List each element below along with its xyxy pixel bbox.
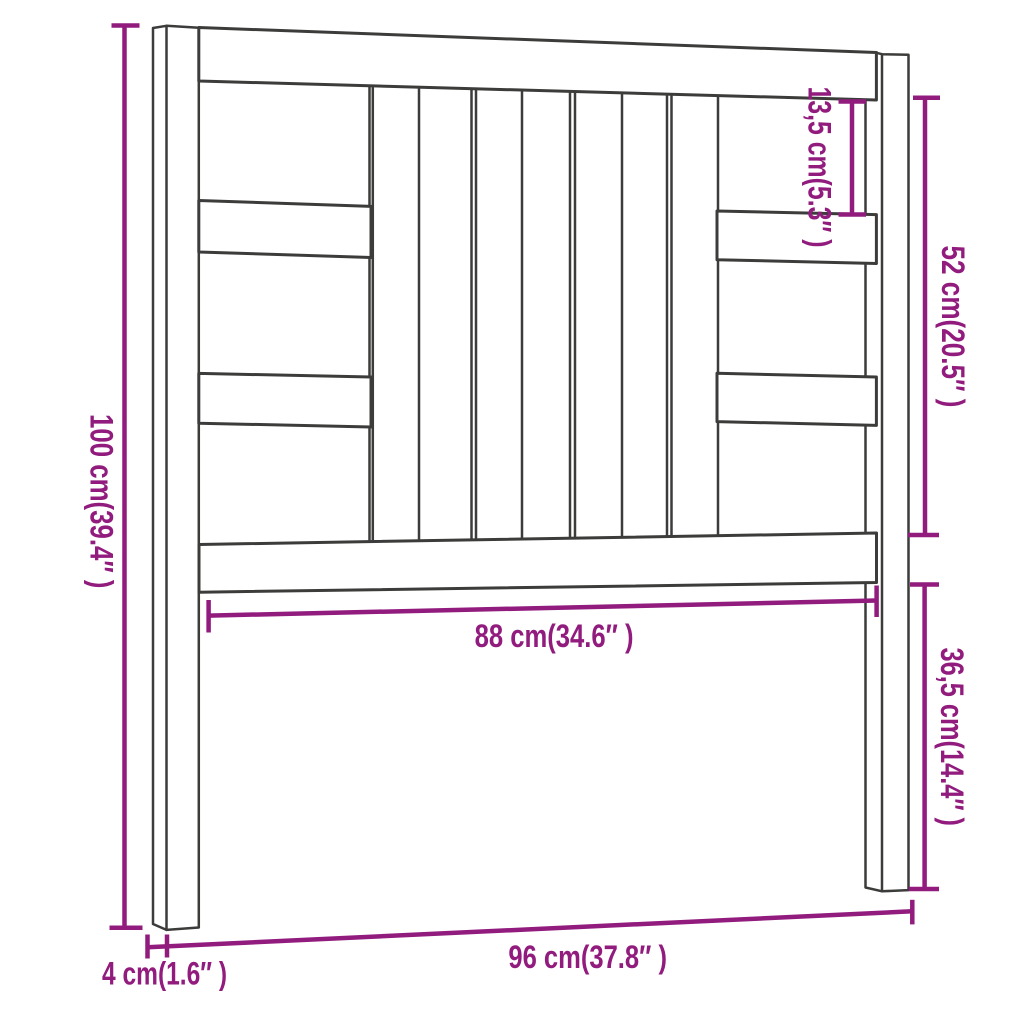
svg-text:88 cm(34.6″ ): 88 cm(34.6″ ) <box>475 618 634 654</box>
svg-text:36,5 cm(14.4″ ): 36,5 cm(14.4″ ) <box>934 648 970 827</box>
svg-text:52 cm(20.5″ ): 52 cm(20.5″ ) <box>935 246 971 408</box>
svg-text:100 cm(39.4″ ): 100 cm(39.4″ ) <box>84 414 120 589</box>
svg-text:13,5 cm(5.3″ ): 13,5 cm(5.3″ ) <box>802 87 838 248</box>
svg-text:4 cm(1.6″ ): 4 cm(1.6″ ) <box>102 956 227 992</box>
svg-text:96 cm(37.8″ ): 96 cm(37.8″ ) <box>508 939 667 975</box>
